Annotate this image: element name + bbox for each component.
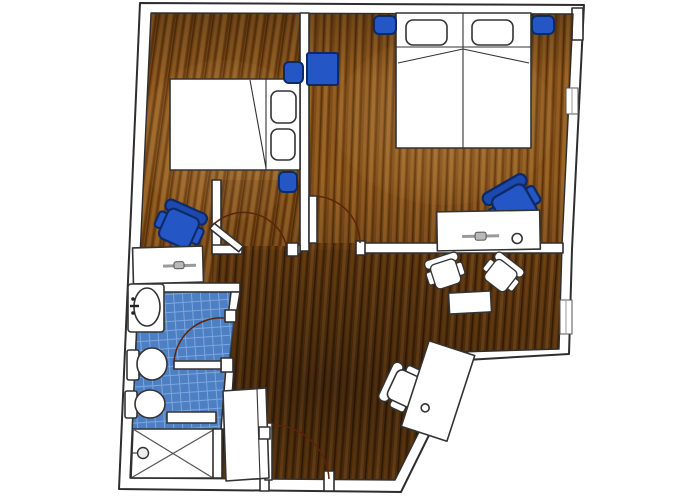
wall-corner-post — [572, 8, 583, 40]
nightstand — [284, 62, 303, 83]
nightstand — [279, 172, 297, 192]
closet-handle — [259, 427, 270, 439]
jamb-bathroom-top — [225, 310, 236, 322]
shower-head-icon — [138, 448, 149, 459]
hallway-furniture — [223, 388, 270, 481]
desk-lamp-icon — [512, 233, 522, 243]
side-table-blue — [307, 53, 338, 85]
nightstand — [532, 16, 554, 34]
wall-central — [300, 13, 309, 251]
shower-stall — [131, 429, 215, 478]
wall-stub-desk-niche — [212, 180, 221, 254]
tap-cold — [131, 311, 135, 315]
desk-right — [437, 210, 541, 251]
coffee-table — [449, 291, 492, 314]
tap-hot — [131, 297, 135, 301]
bed-right — [396, 13, 531, 148]
pillow — [472, 20, 513, 45]
wall-shower-divider — [213, 429, 222, 478]
shower-screen — [167, 412, 216, 423]
wardrobe-closet — [223, 388, 270, 481]
floor-plan-drawing — [0, 0, 700, 500]
jamb-right-bedroom — [356, 241, 365, 255]
pillow — [271, 129, 295, 160]
window-right-lower — [560, 300, 572, 334]
jamb-bathroom-bottom — [221, 358, 233, 372]
toilet — [127, 348, 167, 380]
window-right-upper — [566, 88, 578, 114]
sink-vanity — [128, 284, 164, 332]
nightstand — [374, 16, 396, 34]
bidet — [125, 390, 165, 418]
floor-plan-canvas — [0, 0, 700, 500]
jamb-left-bedroom — [287, 243, 298, 256]
bed-left — [170, 79, 300, 170]
desk-left — [133, 246, 204, 284]
pillow — [406, 20, 447, 45]
pillow — [271, 91, 296, 123]
